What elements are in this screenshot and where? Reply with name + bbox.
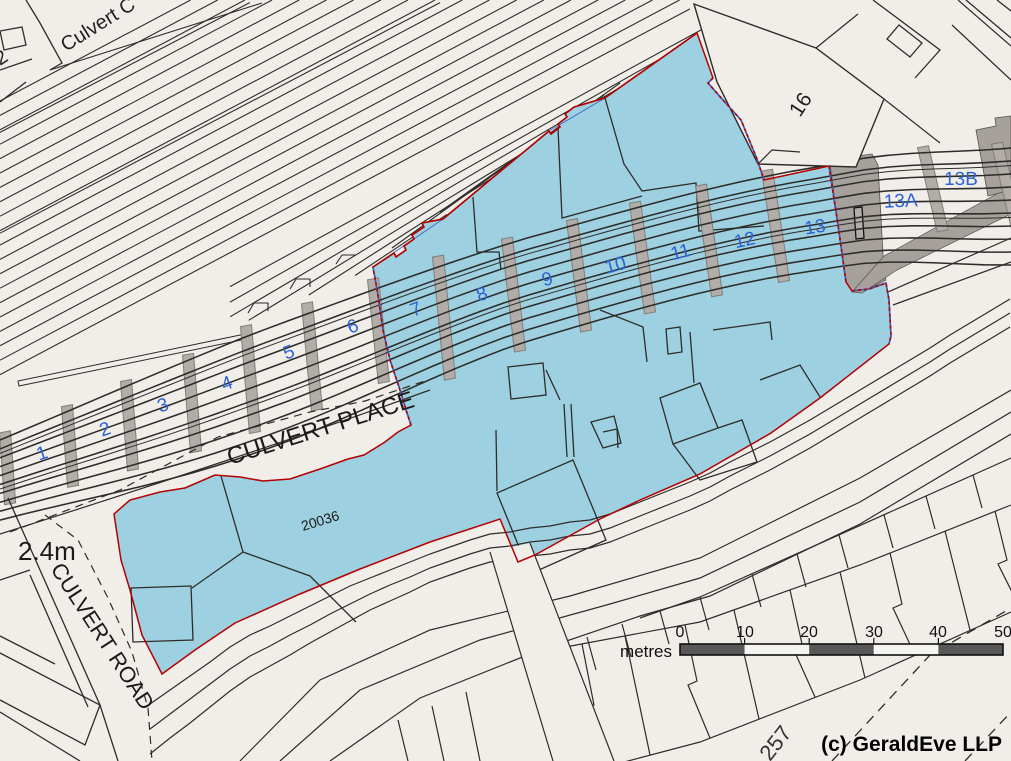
svg-text:12: 12	[732, 228, 757, 253]
svg-text:20: 20	[800, 624, 818, 641]
svg-text:(c) GeraldEve LLP: (c) GeraldEve LLP	[821, 733, 1002, 756]
svg-text:13: 13	[803, 216, 827, 240]
svg-text:50: 50	[994, 624, 1011, 641]
svg-text:30: 30	[865, 624, 883, 641]
svg-text:metres: metres	[620, 642, 672, 661]
svg-text:2.4m: 2.4m	[18, 536, 76, 566]
svg-text:13A: 13A	[883, 190, 918, 212]
svg-text:10: 10	[736, 624, 754, 641]
svg-text:0: 0	[676, 624, 685, 641]
svg-text:40: 40	[929, 624, 947, 641]
svg-text:13B: 13B	[944, 169, 978, 190]
